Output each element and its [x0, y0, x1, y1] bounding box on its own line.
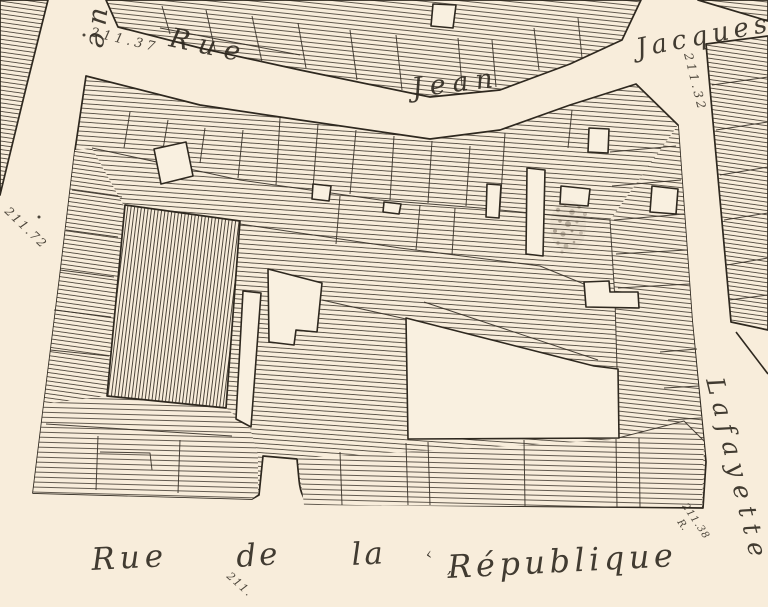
- building-small-4: [526, 168, 545, 256]
- building-small-7: [650, 186, 678, 214]
- building-small-2: [383, 202, 401, 214]
- map-canvas: Rue Rue Jean Jacques Lafayette Rue de la…: [0, 0, 768, 607]
- benchmark-dot-top-left: [83, 34, 86, 37]
- street-label-republique-rue: Rue: [90, 538, 169, 578]
- map-mark-comma: ,: [447, 558, 452, 577]
- building-small-3: [486, 184, 501, 218]
- building-small-1: [312, 184, 331, 201]
- street-label-republique-la: la: [351, 535, 387, 573]
- building-small-8: [431, 4, 456, 28]
- building-vertical-hatched: [107, 205, 240, 408]
- building-small-6: [588, 128, 609, 153]
- benchmark-dot-left: [38, 216, 41, 219]
- street-label-republique-de: de: [235, 536, 282, 575]
- building-square: [154, 142, 193, 184]
- historic-cadastral-map: Rue Rue Jean Jacques Lafayette Rue de la…: [0, 0, 768, 607]
- block-central-bottom-left: [33, 396, 258, 499]
